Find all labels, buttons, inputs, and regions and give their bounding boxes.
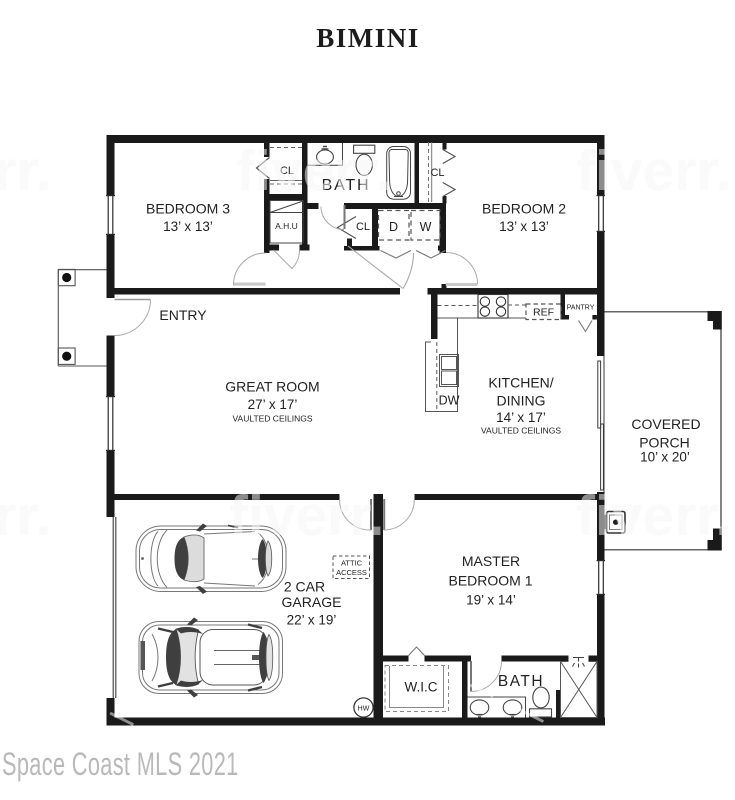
svg-text:BEDROOM 3: BEDROOM 3 — [146, 201, 230, 217]
svg-text:CL: CL — [356, 221, 370, 233]
svg-text:19’ x 14’: 19’ x 14’ — [466, 593, 516, 608]
svg-text:CL: CL — [430, 167, 444, 179]
svg-text:fiverr.: fiverr. — [0, 139, 51, 203]
svg-text:ATTIC: ATTIC — [341, 559, 363, 568]
svg-text:W.I.C: W.I.C — [405, 680, 438, 695]
svg-text:GARAGE: GARAGE — [282, 594, 342, 610]
svg-text:W: W — [420, 220, 432, 234]
svg-text:REF: REF — [533, 307, 554, 319]
svg-text:fiverr.: fiverr. — [0, 484, 51, 548]
svg-text:MASTER: MASTER — [462, 553, 520, 569]
svg-text:PANTRY: PANTRY — [567, 305, 595, 312]
svg-text:COVERED: COVERED — [631, 416, 700, 432]
svg-text:HW: HW — [358, 705, 370, 712]
svg-text:BEDROOM 1: BEDROOM 1 — [448, 573, 532, 589]
svg-text:ENTRY: ENTRY — [159, 307, 207, 323]
svg-text:fiverr.: fiverr. — [576, 139, 731, 203]
svg-text:BEDROOM 2: BEDROOM 2 — [482, 201, 566, 217]
svg-text:13’ x 13’: 13’ x 13’ — [499, 219, 549, 234]
svg-text:27’ x 17’: 27’ x 17’ — [248, 397, 298, 412]
svg-text:fiverr.: fiverr. — [229, 484, 384, 548]
svg-text:KITCHEN/: KITCHEN/ — [488, 375, 553, 391]
svg-text:22’ x 19’: 22’ x 19’ — [287, 613, 337, 628]
svg-text:A.H.U: A.H.U — [275, 221, 298, 231]
svg-text:VAULTED CEILINGS: VAULTED CEILINGS — [481, 426, 561, 436]
svg-text:13’ x 13’: 13’ x 13’ — [163, 219, 213, 234]
svg-text:Space Coast MLS 2021: Space Coast MLS 2021 — [2, 746, 239, 782]
svg-text:VAULTED CEILINGS: VAULTED CEILINGS — [233, 414, 313, 424]
svg-text:DW: DW — [439, 394, 460, 408]
svg-text:fiverr.: fiverr. — [236, 139, 391, 203]
svg-text:2 CAR: 2 CAR — [284, 579, 325, 595]
svg-text:DINING: DINING — [497, 393, 546, 409]
svg-text:ACCESS: ACCESS — [336, 568, 367, 577]
svg-text:BIMINI: BIMINI — [316, 23, 420, 53]
svg-text:14’ x 17’: 14’ x 17’ — [496, 410, 546, 425]
svg-text:fiverr.: fiverr. — [576, 484, 731, 548]
svg-text:BATH: BATH — [498, 673, 544, 690]
svg-text:10’ x 20’: 10’ x 20’ — [640, 450, 690, 465]
svg-text:GREAT ROOM: GREAT ROOM — [225, 379, 319, 395]
svg-text:PORCH: PORCH — [639, 435, 690, 451]
svg-text:D: D — [389, 220, 398, 234]
